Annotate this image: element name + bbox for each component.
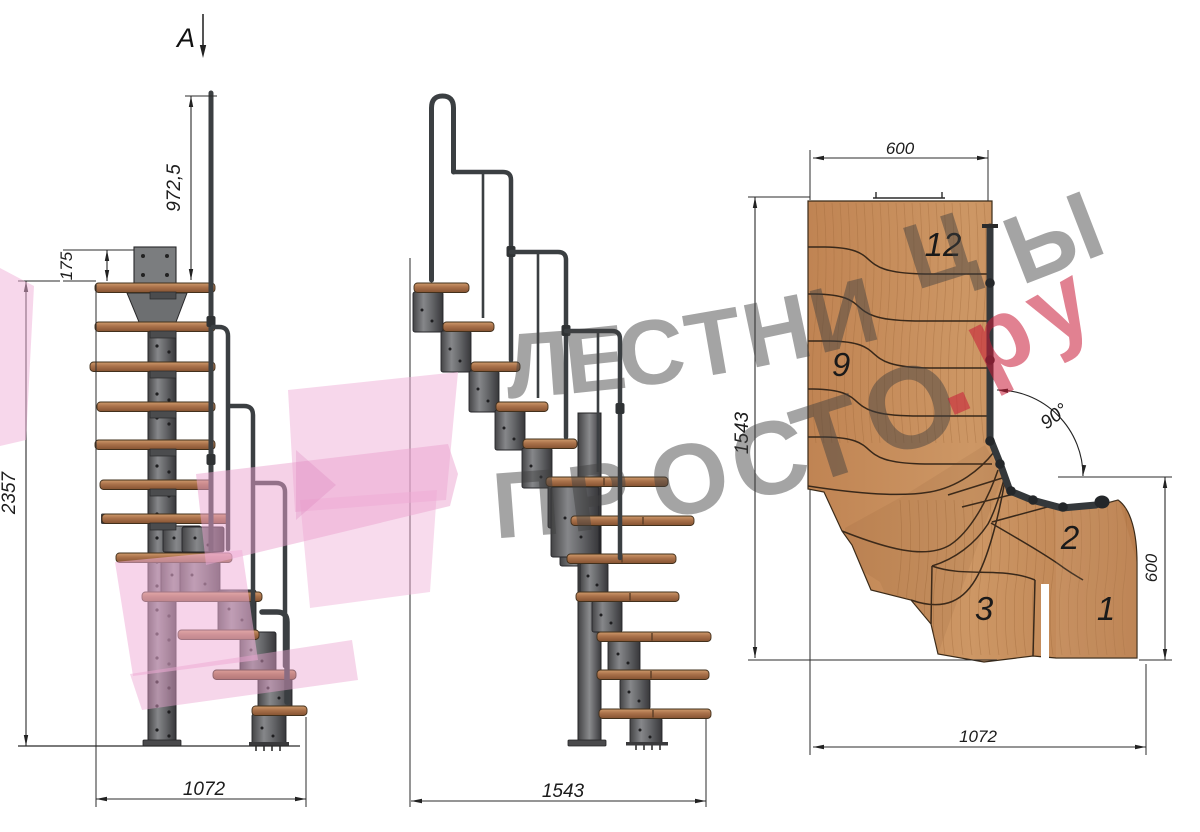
svg-text:2: 2 bbox=[1060, 519, 1079, 556]
svg-text:1: 1 bbox=[1097, 590, 1115, 627]
svg-text:A: A bbox=[175, 23, 195, 53]
svg-text:2357: 2357 bbox=[0, 470, 20, 515]
svg-text:600: 600 bbox=[1142, 553, 1161, 582]
svg-text:972,5: 972,5 bbox=[164, 164, 185, 212]
svg-text:3: 3 bbox=[975, 590, 994, 627]
svg-text:175: 175 bbox=[57, 251, 76, 280]
svg-text:1072: 1072 bbox=[959, 727, 997, 746]
svg-text:1543: 1543 bbox=[542, 781, 585, 802]
svg-text:600: 600 bbox=[886, 139, 915, 158]
svg-text:1072: 1072 bbox=[183, 779, 226, 800]
